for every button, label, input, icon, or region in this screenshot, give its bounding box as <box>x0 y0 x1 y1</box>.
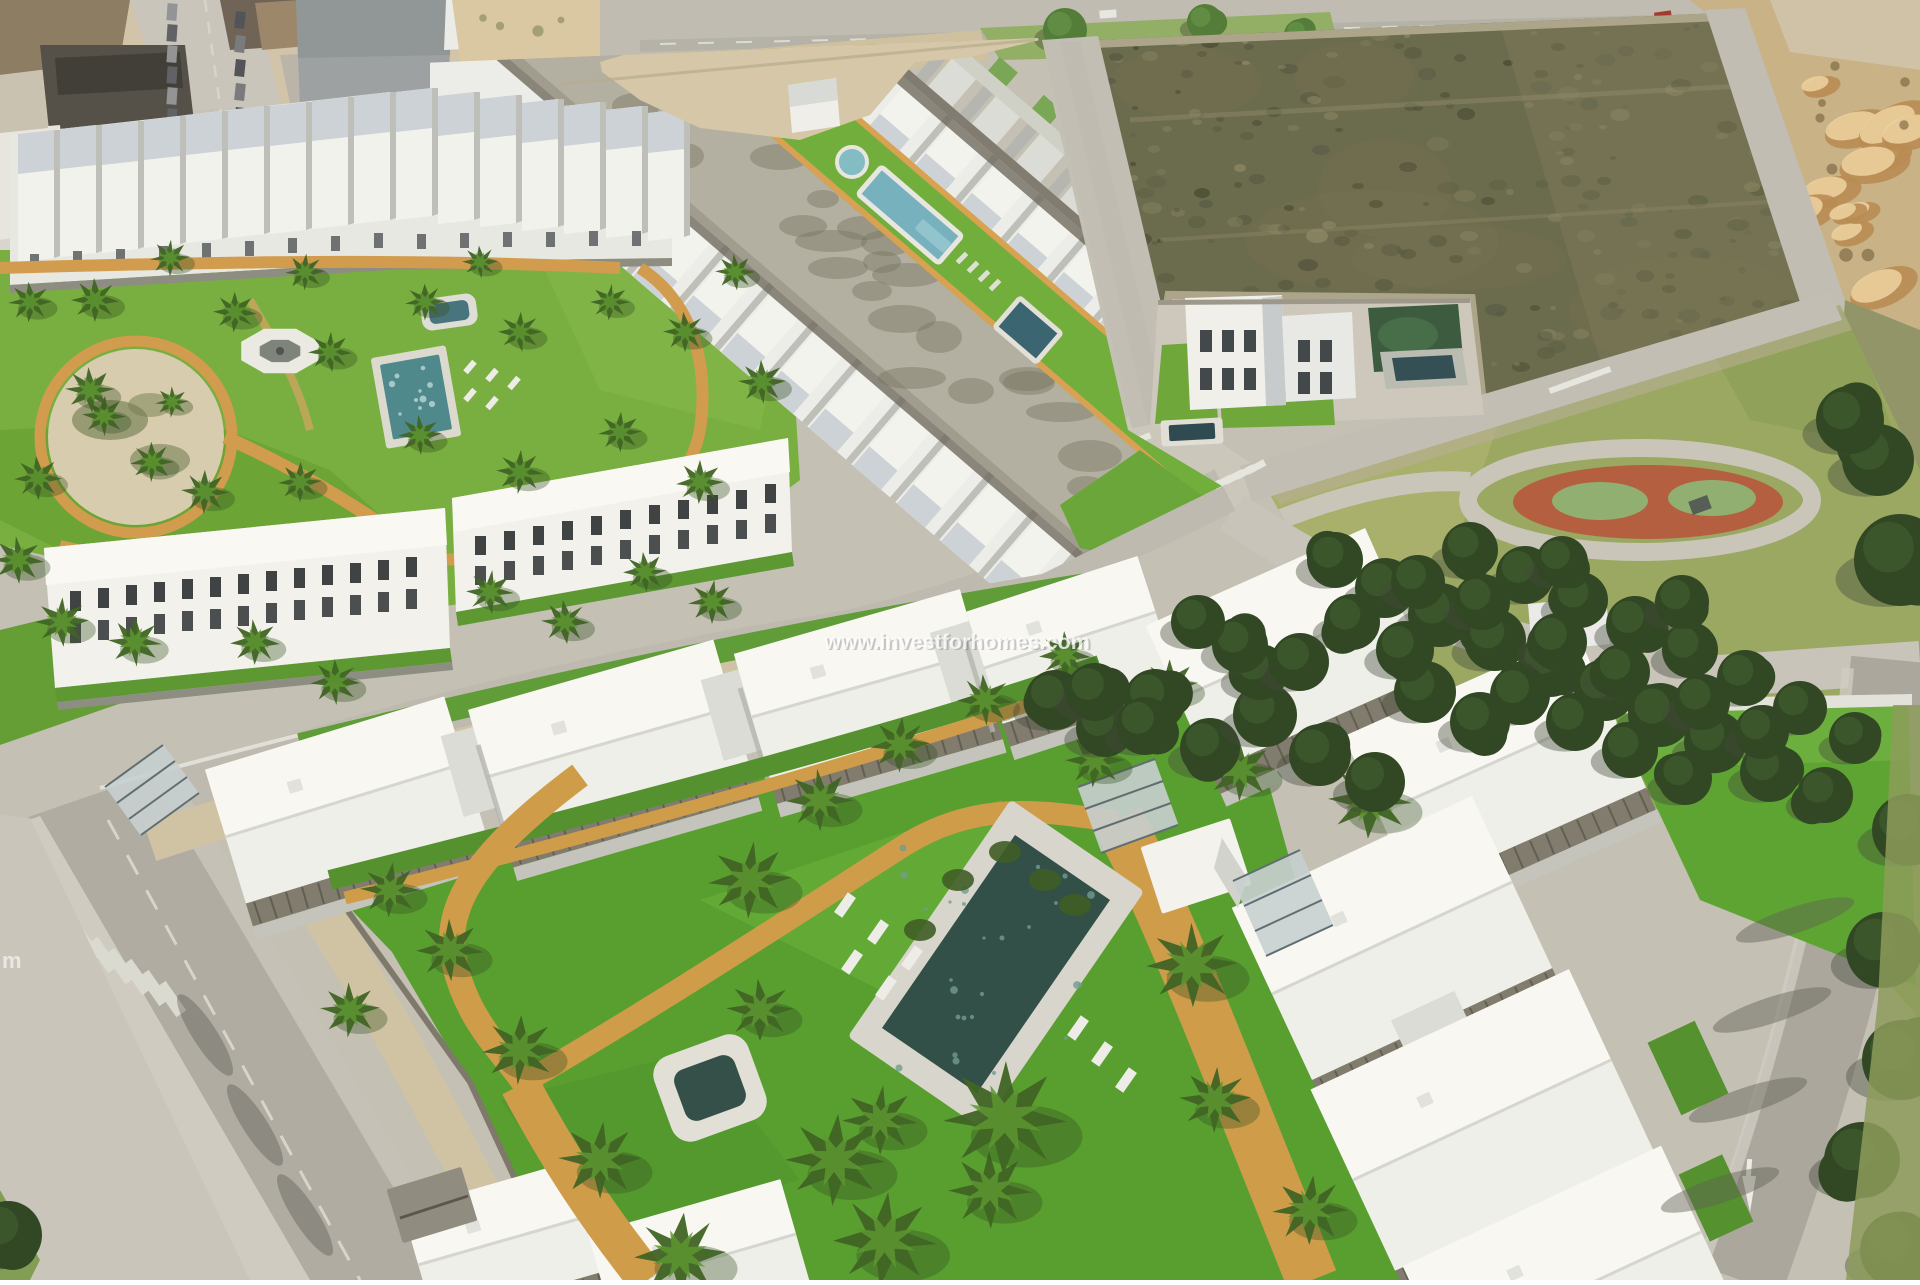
svg-text:m: m <box>2 948 22 973</box>
svg-text:www.investforhomes.com: www.investforhomes.com <box>823 630 1090 654</box>
